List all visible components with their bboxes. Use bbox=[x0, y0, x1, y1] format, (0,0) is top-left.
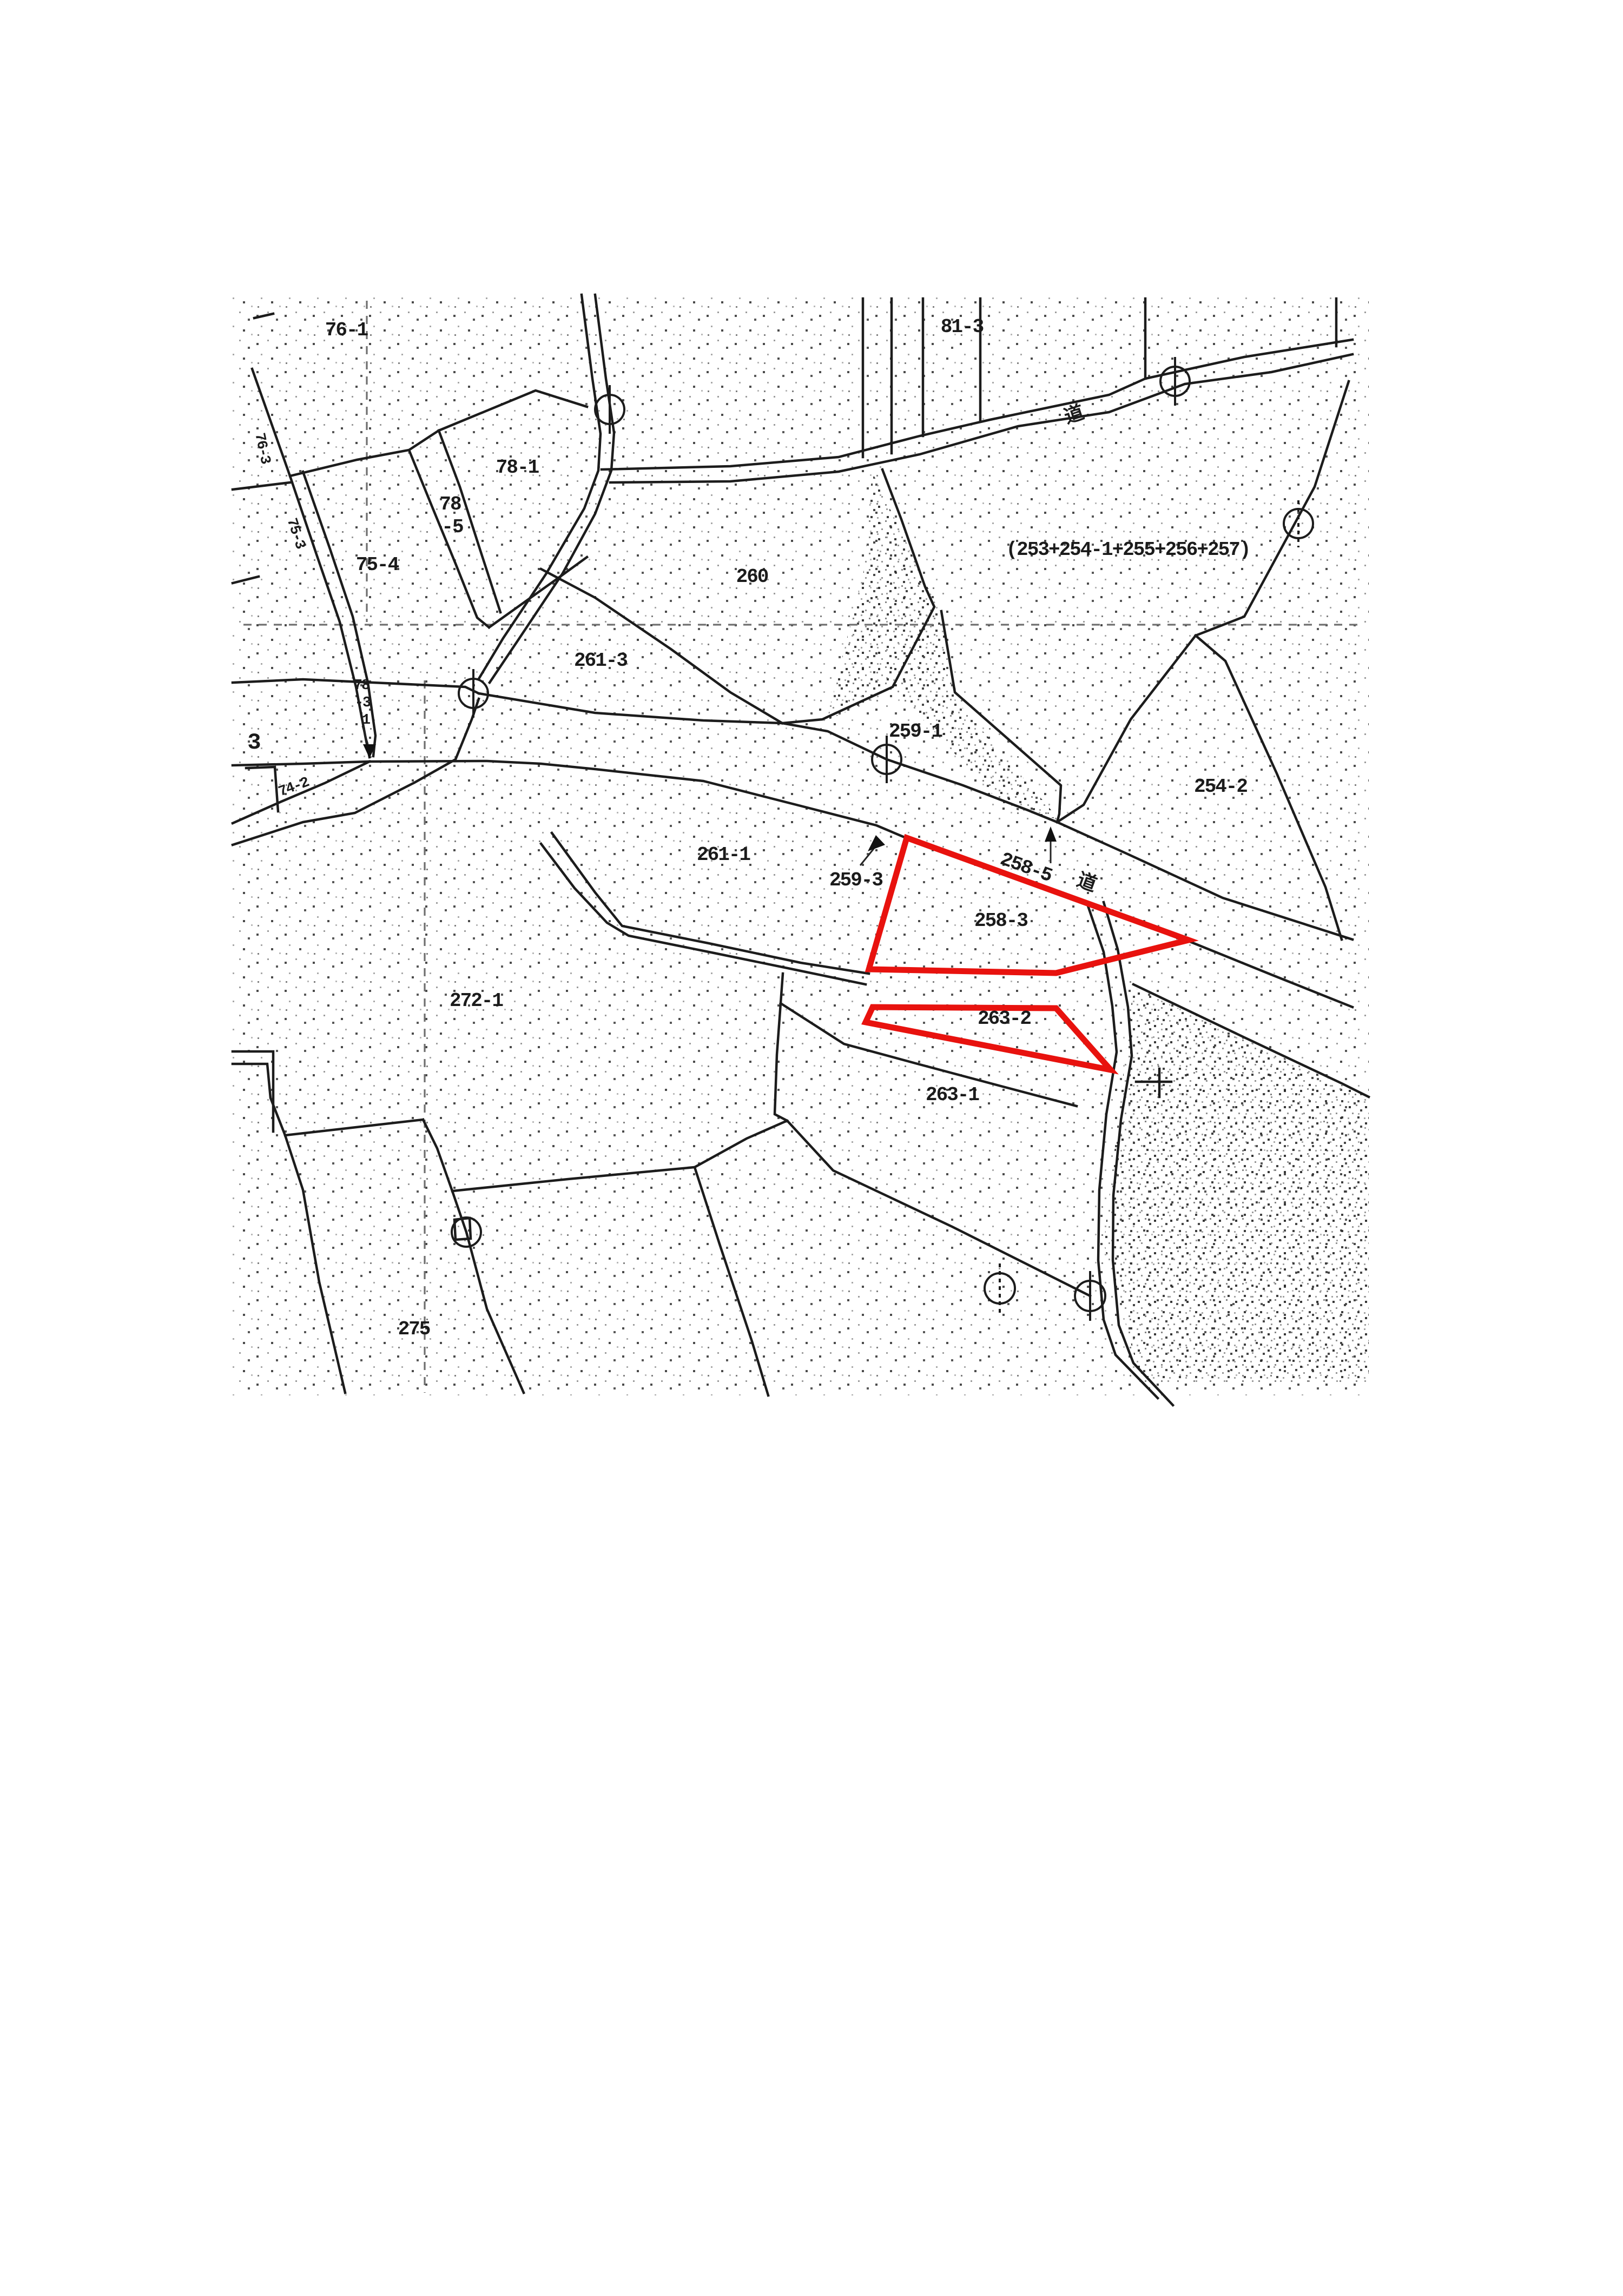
parcel-label: 260 bbox=[736, 566, 768, 588]
parcel-label: 259-1 bbox=[889, 720, 942, 743]
parcel-label: 81-3 bbox=[941, 316, 984, 338]
parcel-label: 258-3 bbox=[974, 910, 1027, 932]
parcel-label: 78-1 bbox=[496, 456, 539, 479]
parcel-label: -3 bbox=[355, 695, 371, 711]
parcel-label: 263-1 bbox=[926, 1084, 979, 1106]
parcel-label: 3 bbox=[247, 730, 261, 756]
parcel-label: 1 bbox=[362, 712, 371, 729]
parcel-label: 272-1 bbox=[450, 990, 503, 1012]
parcel-label: 259-3 bbox=[829, 869, 882, 891]
parcel-label: 75-4 bbox=[356, 554, 399, 576]
compound-parcel-label: (253+254-1+255+256+257) bbox=[1006, 539, 1250, 561]
scanned-cadastral-map-page: { "document": { "kind": "cadastral parce… bbox=[0, 0, 1623, 2296]
parcel-label: 76-1 bbox=[325, 319, 368, 341]
parcel-label: 261-3 bbox=[574, 650, 627, 672]
parcel-label: 78 bbox=[354, 678, 370, 694]
cadastral-map-canvas: 76-1 81-3 道 78-1 78 -5 75-4 76-3 75-3 26… bbox=[0, 0, 1623, 2296]
parcel-label: 261-1 bbox=[697, 844, 750, 866]
parcel-label: 254-2 bbox=[1194, 776, 1247, 798]
parcel-label: 275 bbox=[398, 1318, 430, 1340]
parcel-label: 78 bbox=[439, 493, 461, 515]
parcel-label: 263-2 bbox=[978, 1008, 1031, 1030]
parcel-label: -5 bbox=[441, 516, 463, 538]
